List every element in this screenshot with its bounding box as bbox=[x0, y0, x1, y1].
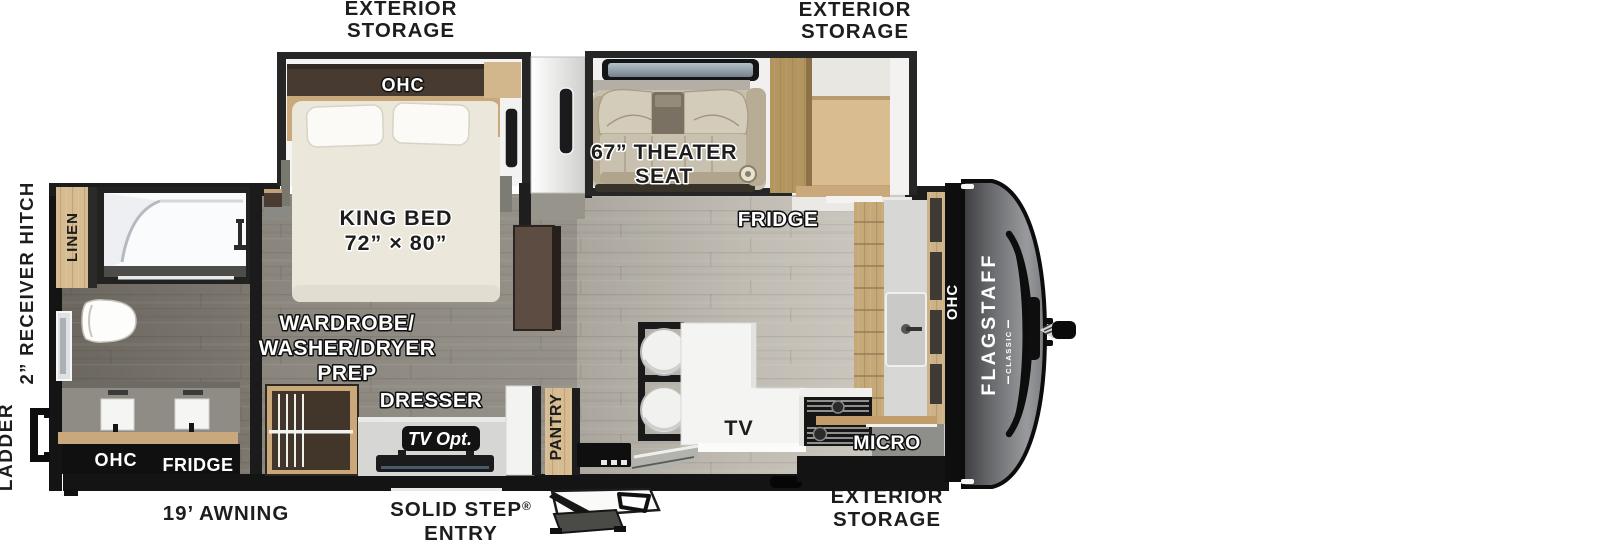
svg-text:LADDER: LADDER bbox=[0, 403, 17, 491]
svg-text:2” RECEIVER HITCH: 2” RECEIVER HITCH bbox=[16, 181, 37, 384]
svg-text:PREP: PREP bbox=[317, 362, 376, 385]
svg-text:PANTRY: PANTRY bbox=[548, 394, 565, 461]
svg-text:67” THEATER: 67” THEATER bbox=[591, 140, 737, 164]
svg-text:ENTRY: ENTRY bbox=[424, 522, 498, 545]
svg-text:EXTERIOR: EXTERIOR bbox=[799, 0, 912, 21]
svg-text:SOLID STEP®: SOLID STEP® bbox=[390, 498, 532, 521]
svg-text:KING BED: KING BED bbox=[339, 206, 452, 230]
svg-text:WARDROBE/: WARDROBE/ bbox=[279, 312, 414, 335]
svg-text:FLAGSTAFF: FLAGSTAFF bbox=[978, 252, 1000, 395]
svg-text:DRESSER: DRESSER bbox=[380, 389, 483, 412]
svg-text:OHC: OHC bbox=[382, 75, 425, 95]
svg-text:TV: TV bbox=[724, 416, 753, 440]
svg-text:STORAGE: STORAGE bbox=[801, 20, 909, 43]
svg-text:OHC: OHC bbox=[95, 450, 138, 470]
svg-text:SEAT: SEAT bbox=[635, 164, 693, 188]
svg-text:OHC: OHC bbox=[944, 284, 961, 320]
svg-text:STORAGE: STORAGE bbox=[347, 19, 455, 42]
svg-text:19’ AWNING: 19’ AWNING bbox=[163, 502, 290, 525]
svg-text:CLASSIC: CLASSIC bbox=[1004, 330, 1013, 373]
svg-text:TV Opt.: TV Opt. bbox=[408, 429, 472, 449]
svg-text:72” × 80”: 72” × 80” bbox=[345, 231, 448, 255]
svg-text:FRIDGE: FRIDGE bbox=[738, 208, 818, 231]
svg-text:STORAGE: STORAGE bbox=[833, 508, 941, 531]
svg-text:WASHER/DRYER: WASHER/DRYER bbox=[259, 337, 436, 360]
svg-text:MICRO: MICRO bbox=[853, 432, 921, 454]
svg-text:FRIDGE: FRIDGE bbox=[162, 455, 233, 475]
svg-text:EXTERIOR: EXTERIOR bbox=[345, 0, 458, 20]
svg-text:LINEN: LINEN bbox=[64, 212, 81, 262]
